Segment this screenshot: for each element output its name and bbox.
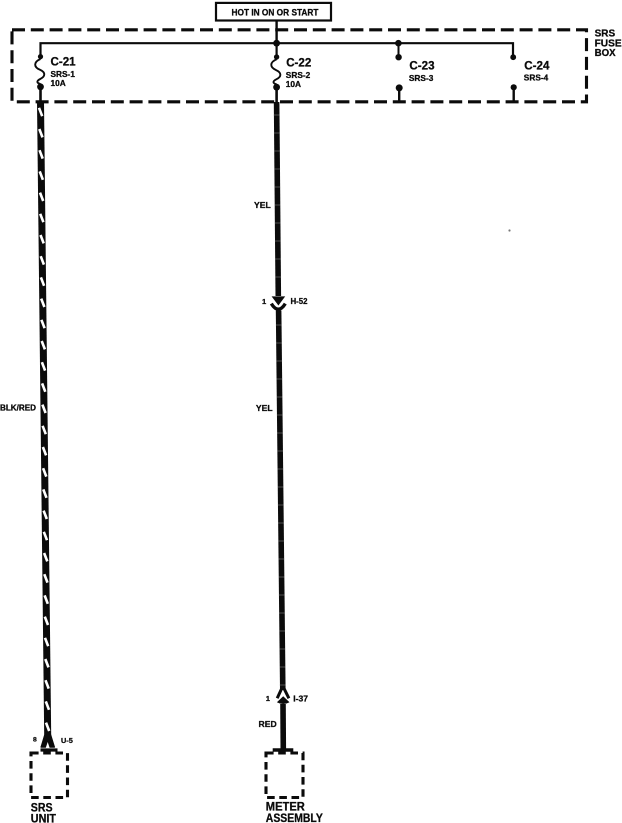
svg-text:10A: 10A	[51, 78, 66, 88]
svg-text:H-52: H-52	[291, 296, 308, 306]
svg-text:U-5: U-5	[61, 736, 74, 745]
svg-text:8: 8	[33, 736, 37, 743]
svg-text:BLK/RED: BLK/RED	[0, 403, 36, 412]
svg-text:10A: 10A	[286, 79, 301, 89]
svg-text:C-24: C-24	[524, 60, 550, 73]
svg-text:SRS-4: SRS-4	[524, 73, 549, 83]
svg-text:YEL: YEL	[256, 403, 273, 413]
svg-text:SRS-3: SRS-3	[409, 73, 434, 83]
svg-text:RED: RED	[259, 719, 277, 729]
svg-text:HOT IN ON OR START: HOT IN ON OR START	[232, 7, 319, 18]
svg-text:C-23: C-23	[409, 60, 435, 73]
svg-text:ASSEMBLY: ASSEMBLY	[266, 812, 323, 823]
svg-text:YEL: YEL	[254, 200, 271, 210]
svg-text:UNIT: UNIT	[31, 813, 56, 823]
svg-text:C-22: C-22	[286, 57, 311, 70]
svg-text:BOX: BOX	[595, 48, 616, 59]
svg-text:C-21: C-21	[51, 56, 77, 69]
svg-text:I-37: I-37	[293, 693, 308, 703]
